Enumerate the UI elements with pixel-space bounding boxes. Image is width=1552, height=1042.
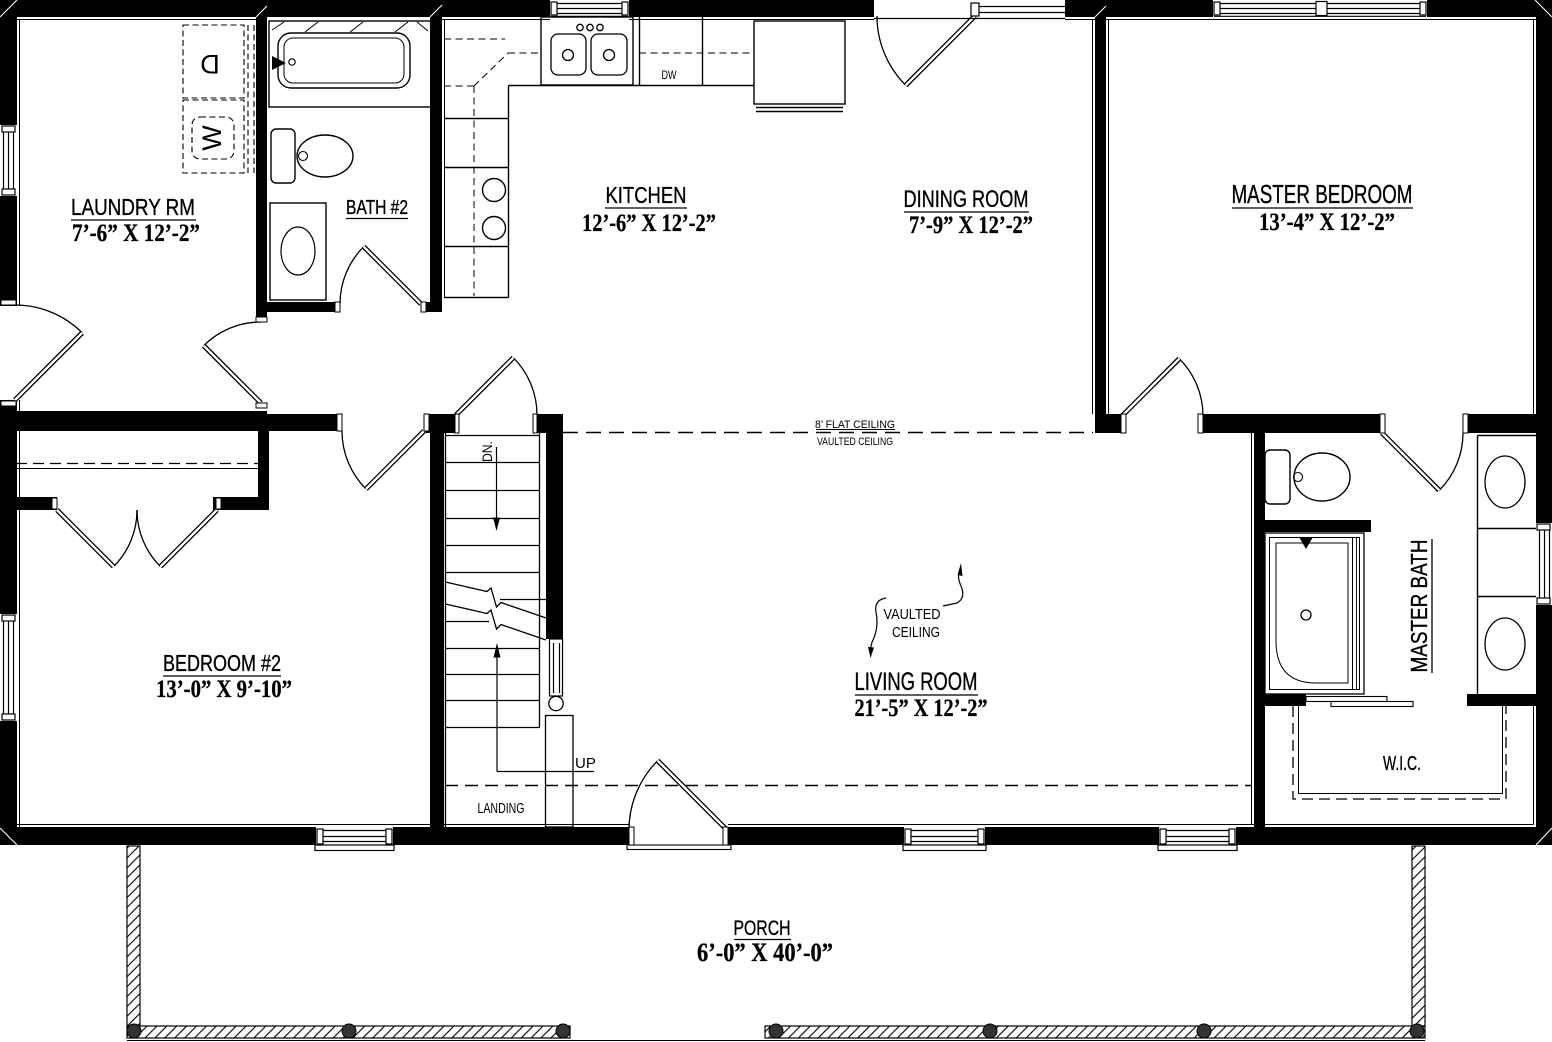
svg-text:BEDROOM #2: BEDROOM #2 [163,650,281,676]
svg-text:LAUNDRY RM: LAUNDRY RM [71,194,195,220]
svg-text:12’-6” X 12’-2”: 12’-6” X 12’-2” [582,208,716,237]
svg-text:MASTER BEDROOM: MASTER BEDROOM [1232,179,1413,209]
svg-text:21’-5” X 12’-2”: 21’-5” X 12’-2” [855,693,988,722]
svg-text:VAULTED: VAULTED [884,606,941,623]
svg-text:LANDING: LANDING [478,800,525,817]
svg-text:CEILING: CEILING [892,624,940,641]
svg-text:KITCHEN: KITCHEN [606,182,687,208]
svg-text:6’-0” X 40’-0”: 6’-0” X 40’-0” [697,937,833,967]
svg-text:7’-9” X 12’-2”: 7’-9” X 12’-2” [909,210,1033,239]
svg-text:7’-6” X 12’-2”: 7’-6” X 12’-2” [72,218,200,247]
svg-text:13’-4” X 12’-2”: 13’-4” X 12’-2” [1259,207,1395,236]
svg-text:LIVING ROOM: LIVING ROOM [855,668,978,696]
svg-text:13’-0” X 9’-10”: 13’-0” X 9’-10” [156,674,292,703]
svg-text:W: W [197,125,227,151]
svg-text:DINING ROOM: DINING ROOM [904,186,1029,213]
svg-text:VAULTED CEILING: VAULTED CEILING [817,436,893,448]
svg-text:D: D [200,49,220,79]
svg-text:DN.: DN. [479,441,495,462]
svg-text:MASTER BATH: MASTER BATH [1406,540,1432,673]
svg-text:BATH #2: BATH #2 [346,197,408,219]
svg-text:DW: DW [662,70,677,82]
svg-text:W.I.C.: W.I.C. [1383,753,1421,775]
svg-text:UP: UP [575,755,596,772]
